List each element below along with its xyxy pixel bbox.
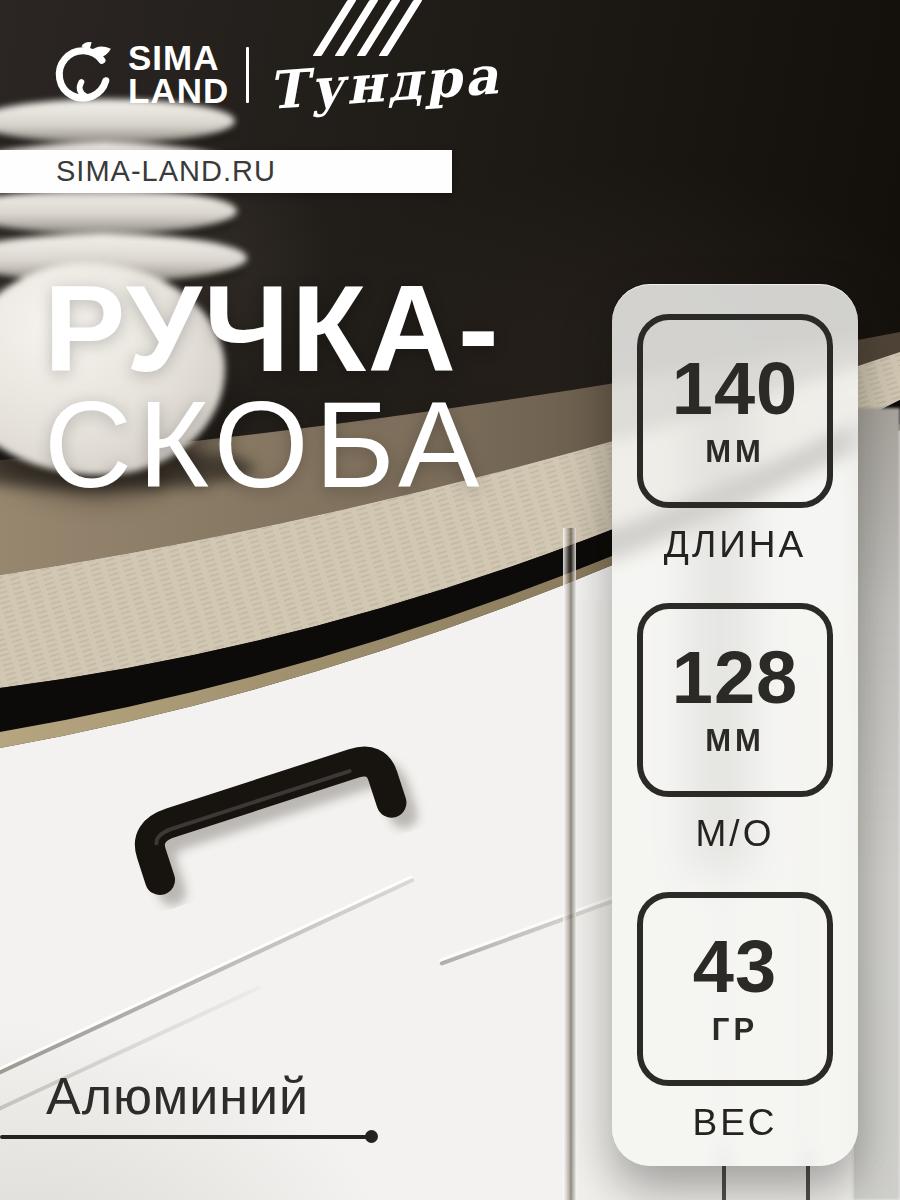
spec-weight-box: 43 ГР xyxy=(637,892,833,1086)
tundra-wordmark: Тундра xyxy=(266,44,502,121)
material-underline xyxy=(0,1135,370,1139)
spec-length-unit: ММ xyxy=(705,434,765,470)
brand-header: SIMA LAND Тундра xyxy=(52,36,501,113)
tundra-logo: Тундра xyxy=(268,36,501,113)
spec-weight-label: ВЕС xyxy=(692,1102,777,1144)
tundra-stripes-icon xyxy=(330,0,418,56)
spec-hole-distance: 128 ММ М/О xyxy=(637,603,833,855)
material-label: Алюминий xyxy=(46,1066,309,1126)
title-line2: СКОБА xyxy=(44,384,501,506)
spec-hole-distance-label: М/О xyxy=(696,813,775,855)
spec-length-label: ДЛИНА xyxy=(664,524,806,566)
spec-hole-distance-unit: ММ xyxy=(705,723,765,759)
cabinet-handle-photo xyxy=(112,712,442,912)
specs-panel: 140 ММ ДЛИНА 128 ММ М/О 43 ГР ВЕС xyxy=(612,284,858,1166)
product-title: РУЧКА- СКОБА xyxy=(44,268,501,506)
spec-weight-unit: ГР xyxy=(712,1012,758,1048)
sima-land-dolphin-icon xyxy=(52,41,116,109)
spec-hole-distance-box: 128 ММ xyxy=(637,603,833,797)
spec-length: 140 ММ ДЛИНА xyxy=(637,314,833,566)
website-url: SIMA-LAND.RU xyxy=(0,155,276,188)
sima-land-wordmark: SIMA LAND xyxy=(128,42,229,106)
website-banner: SIMA-LAND.RU xyxy=(0,150,452,193)
sima-line1: SIMA xyxy=(128,42,229,74)
spec-length-box: 140 ММ xyxy=(637,314,833,508)
material-underline-dot xyxy=(365,1130,378,1143)
sima-line2: LAND xyxy=(128,75,229,107)
product-card: SIMA LAND Тундра SIMA-LAND.RU РУЧКА- СКО… xyxy=(0,0,900,1200)
spec-weight-value: 43 xyxy=(693,930,777,1004)
right-cabinet-shadow xyxy=(852,408,900,1200)
spec-weight: 43 ГР ВЕС xyxy=(637,892,833,1144)
cabinet-door-gap xyxy=(563,528,576,1200)
title-line1: РУЧКА- xyxy=(44,268,501,390)
brand-divider xyxy=(246,47,249,103)
plate xyxy=(0,188,237,234)
spec-length-value: 140 xyxy=(672,352,798,426)
spec-hole-distance-value: 128 xyxy=(672,641,798,715)
